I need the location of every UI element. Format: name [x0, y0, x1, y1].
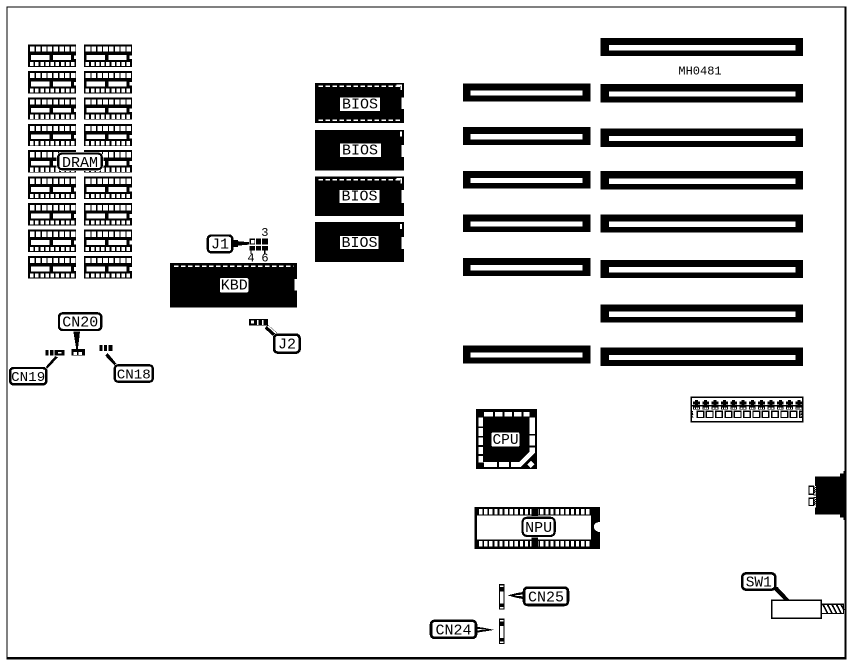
svg-text:CN25: CN25 — [528, 589, 564, 606]
svg-text:3: 3 — [261, 226, 268, 240]
svg-text:MH0481: MH0481 — [678, 65, 721, 79]
svg-text:SW1: SW1 — [746, 575, 772, 591]
svg-text:J1: J1 — [211, 236, 229, 253]
svg-text:CN24: CN24 — [435, 622, 471, 639]
svg-text:KBD: KBD — [221, 278, 248, 295]
svg-text:CPU: CPU — [492, 433, 518, 449]
svg-text:CN20: CN20 — [62, 315, 98, 332]
svg-text:DRAM: DRAM — [62, 155, 98, 172]
svg-text:BIOS: BIOS — [342, 143, 378, 160]
svg-text:CN18: CN18 — [117, 368, 151, 384]
svg-text:BIOS: BIOS — [341, 189, 377, 206]
svg-text:BIOS: BIOS — [341, 235, 377, 252]
svg-text:BIOS: BIOS — [342, 96, 378, 113]
svg-text:CN19: CN19 — [11, 370, 45, 386]
svg-text:NPU: NPU — [525, 520, 552, 537]
svg-text:J2: J2 — [278, 336, 296, 353]
